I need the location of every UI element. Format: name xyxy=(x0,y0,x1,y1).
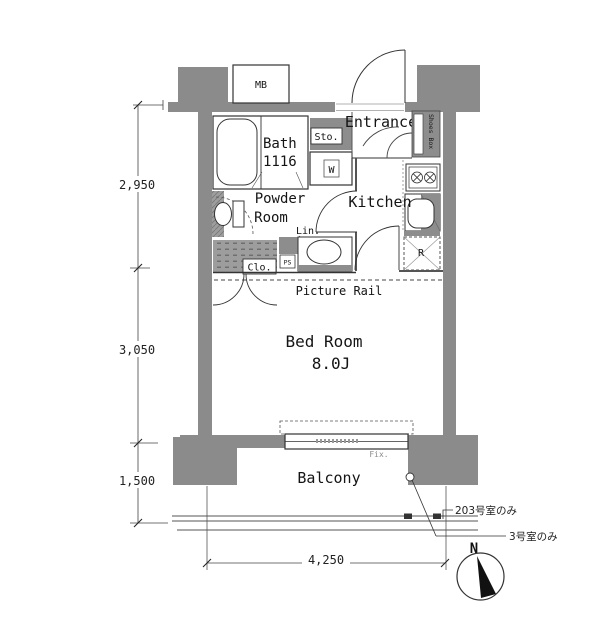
balcony-label: Balcony xyxy=(297,469,360,487)
bedroom-door-arc xyxy=(355,226,399,270)
curtain-box-dashed xyxy=(280,421,413,434)
dim-left-middle-label: 3,050 xyxy=(119,343,155,357)
entry-door xyxy=(336,50,405,111)
wall-top-stub xyxy=(405,102,417,112)
kitchen-label: Kitchen xyxy=(348,193,411,211)
counter-strip xyxy=(404,231,440,236)
note-3-leader-diagonal xyxy=(412,480,436,536)
dim-bottom-label: 4,250 xyxy=(308,553,344,567)
pier-bottom-right xyxy=(408,437,478,485)
dim-left-upper-label: 2,950 xyxy=(119,178,155,192)
note-203-leader xyxy=(443,510,453,519)
bedroom-size-label: 8.0J xyxy=(312,354,351,373)
toilet-tank xyxy=(233,201,244,227)
bedroom-label: Bed Room xyxy=(285,332,362,351)
toilet-bowl xyxy=(215,203,232,226)
bath-label: Bath xyxy=(263,136,297,152)
powder-room-label-line1: Powder xyxy=(255,191,306,207)
pier-bottom-left xyxy=(173,437,237,485)
shoes-box-label: Shoes Box xyxy=(427,114,435,149)
bath-size-label: 1116 xyxy=(263,154,297,170)
washer-label: W xyxy=(328,165,335,176)
floor-plan: MB Bath 1116 Sto. W Entrance xyxy=(0,0,615,627)
sink-basin xyxy=(408,199,434,228)
shoes-box-door-arc xyxy=(387,133,412,158)
wall-right xyxy=(443,112,456,437)
washbasin-bowl xyxy=(307,240,341,264)
powder-room-label-line2: Room xyxy=(254,210,288,226)
closet-door-left-arc xyxy=(213,274,244,305)
shoes-box: Shoes Box xyxy=(412,111,440,157)
compass: N xyxy=(457,541,504,600)
stove xyxy=(406,164,440,191)
dimension-left xyxy=(130,100,168,527)
fixed-window-label: Fix. xyxy=(369,450,388,459)
railing-mark-left xyxy=(404,514,412,520)
railing-mark-right xyxy=(433,514,441,520)
shoes-box-inner xyxy=(414,114,423,154)
picture-rail-label: Picture Rail xyxy=(296,284,383,298)
entrance-area: Entrance xyxy=(345,112,417,158)
pier-top-right xyxy=(417,65,480,112)
washer-space: W xyxy=(310,152,352,185)
entry-door-swing-arc xyxy=(352,50,405,103)
refrigerator-space: R xyxy=(404,237,440,270)
note-3-marker xyxy=(406,473,414,481)
linen-label: Lin. xyxy=(296,226,320,237)
wall-left xyxy=(198,112,212,437)
dimension-bottom: 4,250 xyxy=(203,552,449,567)
washbasin-strip xyxy=(298,265,352,271)
pier-top-left xyxy=(178,67,228,103)
window: Fix. xyxy=(280,421,413,459)
storage-label: Sto. xyxy=(314,132,338,143)
bath-room: Bath 1116 xyxy=(213,116,308,189)
closet-door-right-arc xyxy=(246,274,277,305)
note-3-label: 3号室のみ xyxy=(509,530,558,543)
floor-plan-svg: MB Bath 1116 Sto. W Entrance xyxy=(0,0,615,627)
kitchen-area: R Kitchen xyxy=(348,160,440,270)
linen-shelf xyxy=(279,237,298,254)
entrance-label: Entrance xyxy=(345,113,417,131)
note-203-label: 203号室のみ xyxy=(455,504,517,517)
dimension-left-labels: 2,950 3,050 1,500 xyxy=(114,176,160,488)
meter-box-label: MB xyxy=(255,80,267,91)
dim-left-lower-label: 1,500 xyxy=(119,474,155,488)
refrigerator-label: R xyxy=(418,248,425,259)
meter-box: MB xyxy=(233,65,289,103)
pipe-space-label: PS xyxy=(284,259,292,267)
bathtub xyxy=(217,119,257,185)
